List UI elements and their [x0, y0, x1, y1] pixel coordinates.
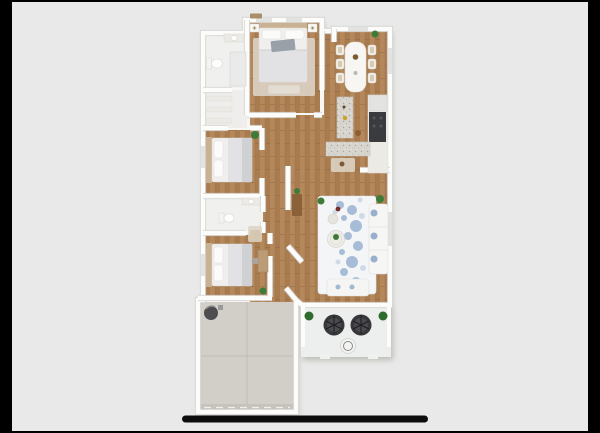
lower-counter: [326, 142, 370, 156]
wall-decor: [250, 14, 262, 19]
hall-rug: [248, 226, 262, 242]
toilet-tank: [219, 213, 224, 223]
letterbox-top-bar: [0, 0, 600, 2]
pillow: [262, 30, 281, 39]
pillow: [285, 30, 304, 39]
plant: [251, 131, 259, 139]
window: [388, 48, 392, 74]
shower: [230, 52, 246, 86]
patio-table: [341, 339, 356, 354]
step-pad: [368, 354, 378, 359]
primary-bedroom: [250, 14, 317, 97]
plant: [376, 195, 384, 203]
headboard: [206, 243, 212, 287]
desk: [258, 250, 268, 272]
range: [369, 112, 386, 142]
loveseat-bench: [327, 279, 369, 296]
blanket: [242, 138, 252, 182]
plant: [333, 234, 339, 240]
window: [348, 27, 368, 31]
basket: [340, 162, 345, 167]
letterbox-right-bar: [588, 0, 600, 433]
fruit-bowl: [343, 116, 347, 120]
window: [201, 146, 205, 168]
hall-closet: [206, 96, 232, 123]
plant: [318, 198, 325, 205]
window: [388, 212, 392, 246]
side-table: [328, 214, 338, 224]
window: [201, 254, 205, 276]
step-pad: [320, 354, 330, 359]
letterbox-left-bar: [0, 0, 12, 433]
pillow: [214, 141, 223, 158]
sink: [231, 36, 237, 41]
pillow: [214, 160, 223, 177]
sofa-pillow: [371, 233, 378, 240]
desk-chair: [253, 258, 258, 264]
sofa-pillow: [371, 256, 378, 263]
toilet-tank: [207, 58, 212, 69]
bedroom-2: [206, 131, 259, 183]
dining-table: [345, 42, 366, 92]
photo-divider-line: [182, 416, 428, 423]
plant: [260, 288, 267, 295]
decor-red: [336, 207, 341, 212]
refrigerator: [370, 95, 387, 111]
blanket: [242, 244, 252, 286]
sink: [248, 199, 254, 203]
centerpiece: [353, 54, 359, 60]
foot-bench: [268, 85, 300, 94]
pillow: [214, 247, 223, 263]
toilet: [212, 59, 223, 68]
plant: [379, 312, 388, 321]
plant: [372, 31, 379, 38]
headboard: [206, 137, 212, 183]
sofa-pillow: [371, 210, 378, 217]
stool: [355, 130, 361, 136]
toilet: [224, 214, 234, 222]
plant: [305, 312, 314, 321]
photo-viewer: [0, 0, 600, 433]
floor-plan-image: [0, 0, 600, 433]
duvet: [259, 50, 307, 82]
headboard: [259, 23, 307, 28]
plant: [294, 188, 300, 194]
pillow: [214, 265, 223, 281]
window: [286, 18, 302, 22]
console-table: [292, 194, 302, 216]
